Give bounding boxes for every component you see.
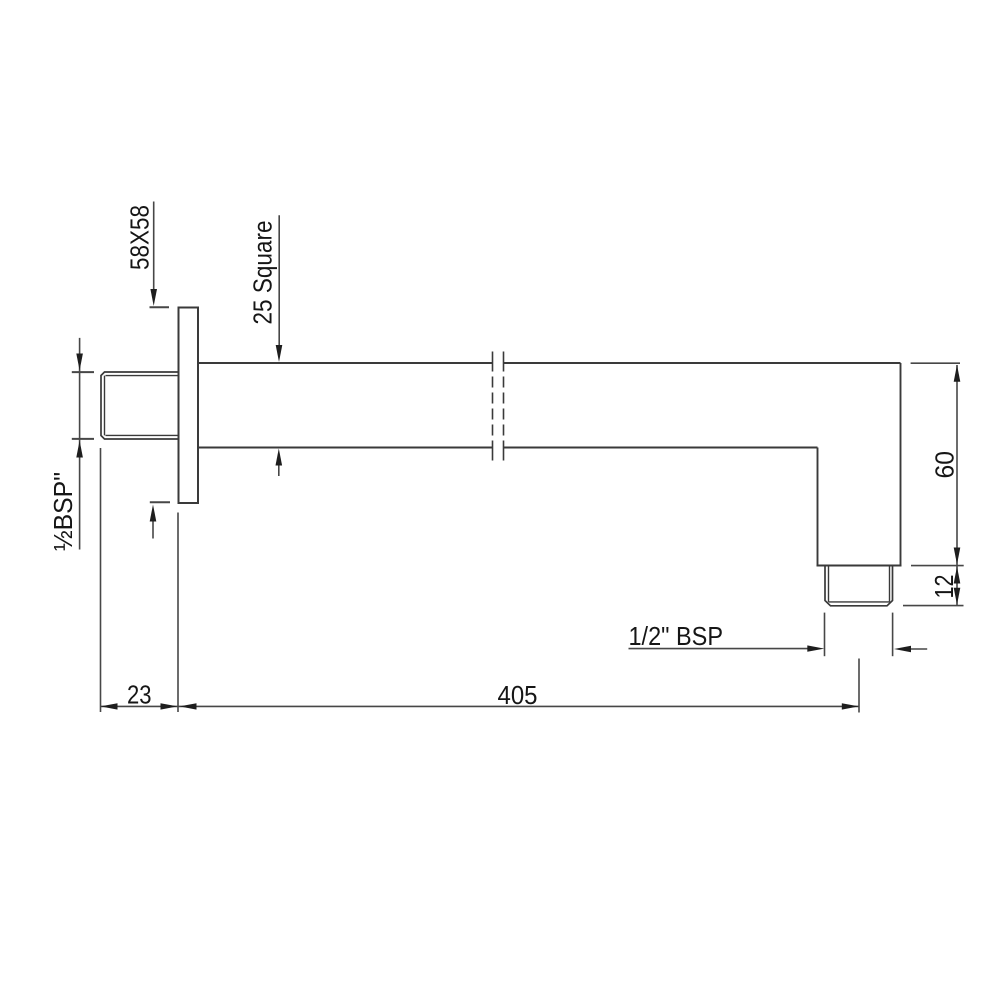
svg-text:1/2" BSP: 1/2" BSP <box>629 621 724 651</box>
svg-text:58X58: 58X58 <box>125 205 155 270</box>
svg-text:12: 12 <box>929 575 959 599</box>
svg-text:½BSP": ½BSP" <box>48 472 78 551</box>
svg-text:60: 60 <box>930 451 960 479</box>
svg-text:25 Square: 25 Square <box>248 221 278 325</box>
svg-text:405: 405 <box>498 680 538 710</box>
svg-text:23: 23 <box>127 680 152 710</box>
